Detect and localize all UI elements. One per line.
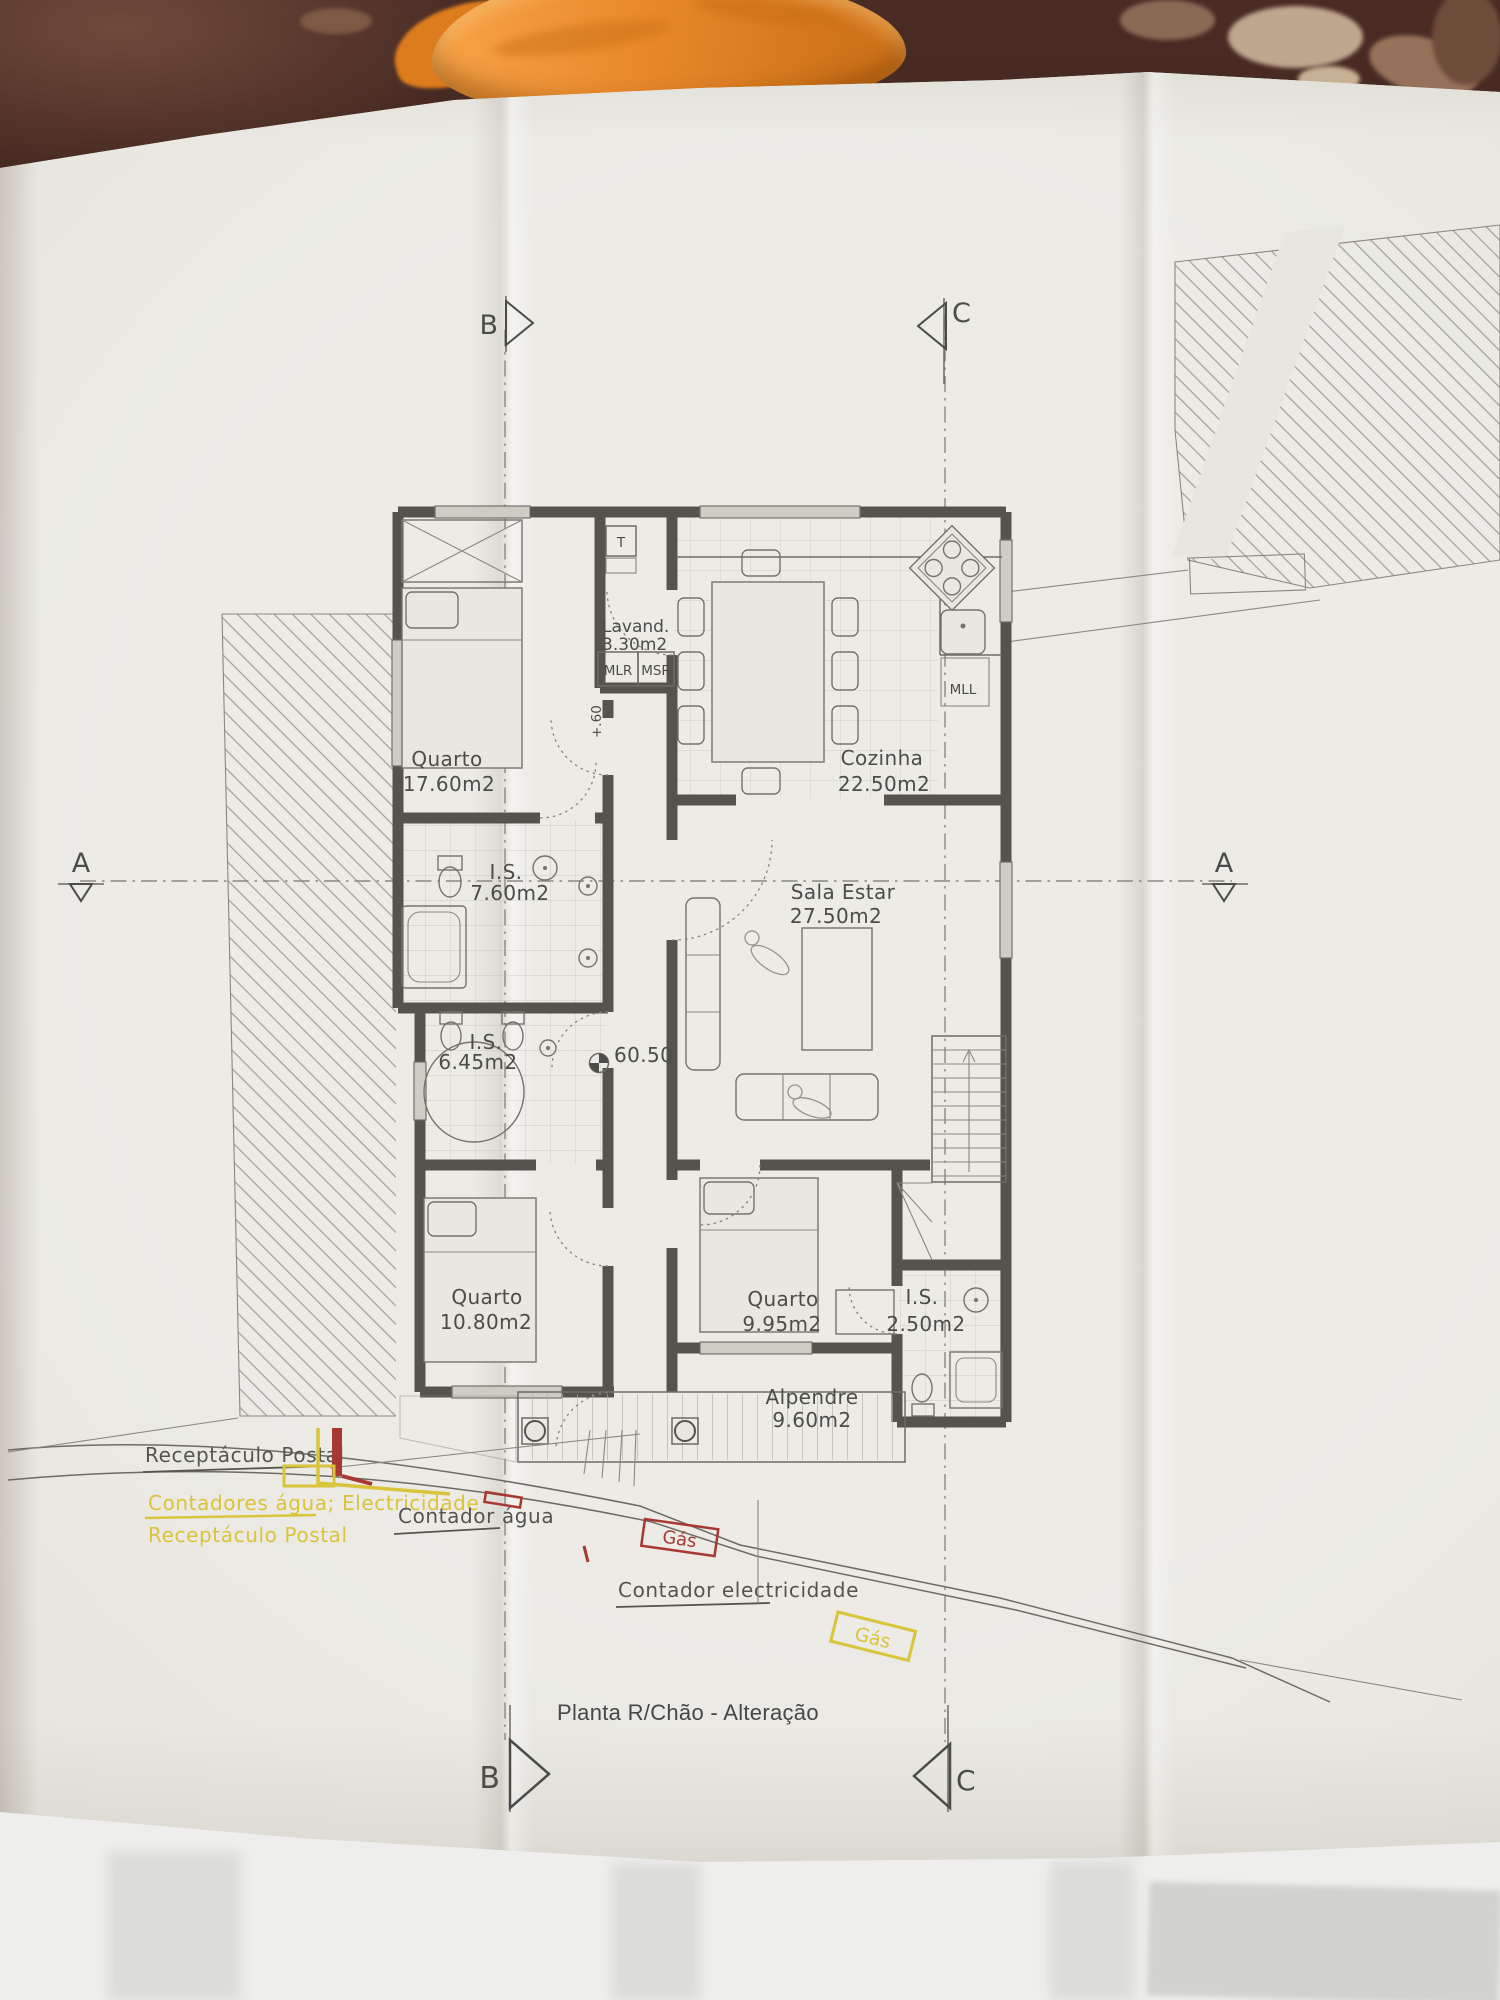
person-figure: [788, 1085, 834, 1122]
room-label-sala-name: Sala Estar: [791, 880, 896, 904]
section-c-bottom: C: [956, 1764, 976, 1797]
section-a-left: A: [72, 848, 91, 879]
room-label-is3-name: I.S.: [906, 1285, 939, 1309]
porch-column: [675, 1421, 695, 1441]
electricity-meter-label: Contador electricidade: [618, 1578, 859, 1602]
section-b-bottom: B: [479, 1761, 500, 1796]
coffee-table: [802, 928, 872, 1050]
room-label-alpendre-name: Alpendre: [766, 1385, 859, 1409]
room-label-quarto3-area: 9.95m2: [742, 1312, 821, 1336]
room-label-cozinha-area: 22.50m2: [838, 772, 930, 796]
bed-icon: [424, 1198, 536, 1362]
room-label-quarto2-area: 10.80m2: [440, 1310, 532, 1334]
gas-marker-yellow: Gás: [831, 1612, 916, 1660]
kitchen-sink-icon: [941, 610, 985, 654]
dresser-icon: [836, 1290, 894, 1334]
room-label-quarto2-name: Quarto: [451, 1285, 522, 1309]
floor-plan-drawing: MLL T MLR MSR: [0, 0, 1500, 2000]
level-step-label: +.60: [589, 705, 605, 738]
section-b-top: B: [479, 310, 498, 341]
sofa-icon: [686, 898, 720, 1070]
dryer-label: MSR: [641, 663, 671, 679]
room-label-is3-area: 2.50m2: [886, 1312, 965, 1336]
level-main-label: 60.50: [614, 1043, 673, 1067]
room-label-quarto1-name: Quarto: [411, 747, 482, 771]
room-label-lavandaria-name: Lavand.: [602, 617, 669, 637]
entry-steps: [400, 1396, 516, 1462]
section-c-top: C: [952, 298, 971, 329]
room-label-is2-area: 6.45m2: [438, 1050, 517, 1074]
living-furniture: [686, 898, 878, 1122]
dishwasher-label: MLL: [950, 682, 977, 698]
gas-marker-red: Gás: [641, 1519, 718, 1556]
room-label-quarto3-name: Quarto: [747, 1287, 818, 1311]
postal2-label: Receptáculo Postal: [148, 1523, 348, 1547]
utility-annotations: Receptáculo Postal Contadores água; Elec…: [143, 1428, 916, 1660]
person-figure: [745, 931, 793, 980]
drawing-title: Planta R/Chão - Alteração: [557, 1700, 819, 1725]
photo-scene: MLL T MLR MSR: [0, 0, 1500, 2000]
postal-label: Receptáculo Postal: [145, 1443, 345, 1467]
washer-label: MLR: [604, 663, 633, 679]
room-label-sala-area: 27.50m2: [790, 904, 882, 928]
water-meter-label: Contador água: [398, 1504, 554, 1528]
section-a-right: A: [1215, 848, 1234, 879]
porch-column: [525, 1421, 545, 1441]
water-heater-label: T: [616, 535, 626, 551]
sofa-icon: [736, 1074, 878, 1120]
room-label-lavandaria-area: 3.30m2: [602, 635, 667, 655]
room-label-quarto1-area: 17.60m2: [403, 772, 495, 796]
room-label-alpendre-area: 9.60m2: [772, 1408, 851, 1432]
room-label-is1-area: 7.60m2: [470, 881, 549, 905]
bed-icon: [402, 588, 522, 768]
room-label-cozinha-name: Cozinha: [841, 746, 924, 770]
dining-table: [712, 582, 824, 762]
stairs: [897, 1036, 1006, 1260]
